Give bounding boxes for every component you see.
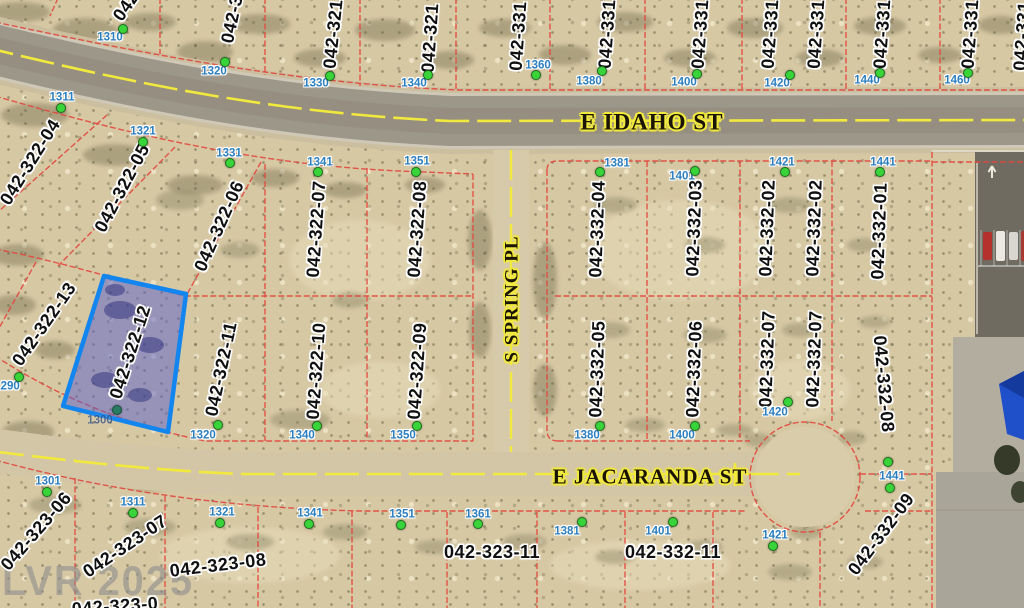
selected-parcel-id-label: 042-322-12 xyxy=(106,303,153,401)
address-label: 1350 xyxy=(390,430,416,442)
parcel-id-label: 042-332-02 xyxy=(756,179,777,277)
address-point-dot xyxy=(875,68,885,78)
address-point-dot xyxy=(783,397,793,407)
parcel-id-label: 042-321 xyxy=(320,0,345,70)
address-point-dot xyxy=(325,71,335,81)
address-point-dot xyxy=(112,405,122,415)
street-name-label: E JACARANDA ST xyxy=(553,467,748,488)
address-point-dot xyxy=(312,421,322,431)
address-label: 1351 xyxy=(404,156,430,168)
parcel-id-label: 042-332-08 xyxy=(871,335,897,433)
address-label: 1320 xyxy=(190,430,216,442)
parcel-id-label: 042-322-06 xyxy=(191,178,247,274)
address-label: 1401 xyxy=(645,526,671,538)
address-point-dot xyxy=(14,372,24,382)
parcel-id-label: 042-322-04 xyxy=(0,116,63,208)
address-label: 1311 xyxy=(50,92,75,104)
address-point-dot xyxy=(423,70,433,80)
parcel-id-label: 042-331 xyxy=(1011,1,1024,72)
parcel-id-label: 042-322-10 xyxy=(304,322,329,420)
parcel-id-label: 042-322-11 xyxy=(202,320,240,418)
address-label: 1300 xyxy=(87,415,113,427)
address-point-dot xyxy=(690,166,700,176)
label-layer: E IDAHO STS SPRING PLE JACARANDA ST04204… xyxy=(0,0,1024,608)
parcel-id-label: 042-332-07 xyxy=(803,310,824,408)
parcel-id-label: 042-322-13 xyxy=(9,279,79,369)
address-point-dot xyxy=(690,421,700,431)
address-point-dot xyxy=(138,137,148,147)
address-point-dot xyxy=(118,24,128,34)
address-point-dot xyxy=(128,508,138,518)
address-point-dot xyxy=(396,520,406,530)
address-label: 1340 xyxy=(289,430,315,442)
parcel-id-label: 042-331 xyxy=(596,0,619,69)
parcel-id-label: 042-332-03 xyxy=(683,179,704,277)
parcel-id-label: 042-332-05 xyxy=(586,320,607,418)
parcel-id-label: 042-332-09 xyxy=(845,490,918,578)
address-label: 1320 xyxy=(201,66,227,78)
address-point-dot xyxy=(313,167,323,177)
address-point-dot xyxy=(225,158,235,168)
address-point-dot xyxy=(42,487,52,497)
parcel-id-label: 042-332-11 xyxy=(625,543,721,561)
address-point-dot xyxy=(56,103,66,113)
parcel-id-label: 042-332-02 xyxy=(803,179,824,277)
parcel-id-label: 042-331 xyxy=(871,0,894,69)
parcel-id-label: 042-323-11 xyxy=(444,543,540,561)
street-name-label: E IDAHO ST xyxy=(581,111,724,134)
address-label: 1421 xyxy=(762,530,788,542)
parcel-id-label: 042-331 xyxy=(959,0,982,69)
address-point-dot xyxy=(883,457,893,467)
address-label: 1341 xyxy=(297,508,323,520)
parcel-id-label: 042-321 xyxy=(419,3,442,74)
address-point-dot xyxy=(692,69,702,79)
address-point-dot xyxy=(473,519,483,529)
address-label: 1400 xyxy=(669,430,695,442)
address-label: 1420 xyxy=(762,407,788,419)
address-label: 1290 xyxy=(0,381,20,393)
address-label: 1381 xyxy=(554,526,580,538)
address-point-dot xyxy=(597,66,607,76)
address-label: 1420 xyxy=(764,78,790,90)
address-label: 1380 xyxy=(574,430,600,442)
address-point-dot xyxy=(595,421,605,431)
address-point-dot xyxy=(304,519,314,529)
address-label: 1380 xyxy=(576,76,602,88)
address-label: 1321 xyxy=(209,507,235,519)
parcel-id-label: 042-323-0 xyxy=(71,594,159,608)
parcel-id-label: 042-323-06 xyxy=(0,488,75,573)
parcel-id-label: 042-331 xyxy=(805,0,828,69)
address-label: 1330 xyxy=(303,78,329,90)
address-point-dot xyxy=(785,70,795,80)
address-label: 1381 xyxy=(604,158,630,170)
parcel-id-label: 042-332-07 xyxy=(756,310,777,408)
address-point-dot xyxy=(780,167,790,177)
street-name-label: S SPRING PL xyxy=(503,235,522,362)
address-point-dot xyxy=(215,518,225,528)
parcel-id-label: 042-322-05 xyxy=(91,141,152,235)
address-point-dot xyxy=(531,70,541,80)
address-point-dot xyxy=(220,57,230,67)
address-label: 1441 xyxy=(879,471,905,483)
address-label: 1440 xyxy=(854,75,880,87)
parcel-id-label: 042-323-07 xyxy=(80,511,171,580)
address-point-dot xyxy=(668,517,678,527)
address-label: 1351 xyxy=(389,509,415,521)
address-label: 1310 xyxy=(97,32,123,44)
parcel-id-label: 042-322-07 xyxy=(304,180,329,278)
address-point-dot xyxy=(885,483,895,493)
address-label: 1400 xyxy=(671,77,697,89)
address-point-dot xyxy=(963,68,973,78)
parcel-id-label: 042-331 xyxy=(689,0,712,69)
address-point-dot xyxy=(213,420,223,430)
address-point-dot xyxy=(768,541,778,551)
parcel-id-label: 042 xyxy=(110,0,143,24)
parcel-id-label: 042-331 xyxy=(759,0,782,69)
parcel-id-label: 042-322-09 xyxy=(405,322,430,420)
address-point-dot xyxy=(412,421,422,431)
address-point-dot xyxy=(577,517,587,527)
address-point-dot xyxy=(875,167,885,177)
address-point-dot xyxy=(411,167,421,177)
parcel-id-label: 042-323-08 xyxy=(169,550,268,580)
address-label: 1301 xyxy=(35,476,61,488)
map-canvas[interactable]: LVR 2025 E IDAHO STS SPRING PLE JACARAND… xyxy=(0,0,1024,608)
parcel-id-label: 042-332-04 xyxy=(586,180,607,278)
parcel-id-label: 042-332-01 xyxy=(868,182,889,280)
address-label: 1340 xyxy=(401,78,427,90)
parcel-id-label: 042-332-06 xyxy=(683,320,704,418)
parcel-id-label: 042-32 xyxy=(218,0,248,45)
address-point-dot xyxy=(595,167,605,177)
parcel-id-label: 042-322-08 xyxy=(405,180,430,278)
